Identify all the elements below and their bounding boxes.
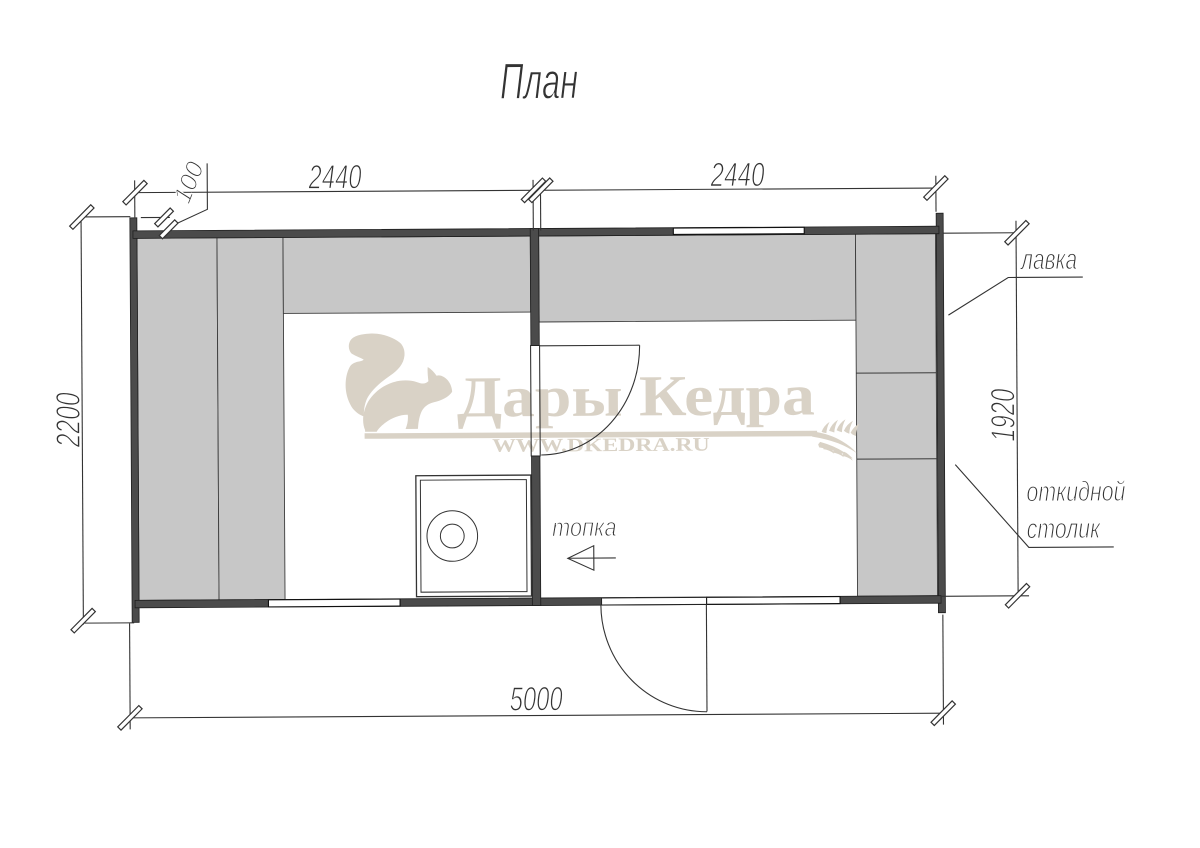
svg-text:2200: 2200 [50, 392, 88, 448]
svg-text:2440: 2440 [308, 158, 362, 196]
svg-text:Дары Кедра: Дары Кедра [457, 362, 815, 429]
svg-text:2440: 2440 [710, 156, 765, 194]
svg-text:откидной: откидной [1026, 476, 1126, 508]
svg-text:WWW.DKEDRA.RU: WWW.DKEDRA.RU [492, 435, 710, 457]
svg-text:План: План [500, 52, 578, 109]
svg-text:1920: 1920 [984, 388, 1022, 441]
svg-text:лавка: лавка [1020, 244, 1078, 276]
svg-text:5000: 5000 [510, 680, 563, 718]
svg-text:столик: столик [1027, 513, 1102, 544]
svg-text:топка: топка [552, 512, 617, 542]
